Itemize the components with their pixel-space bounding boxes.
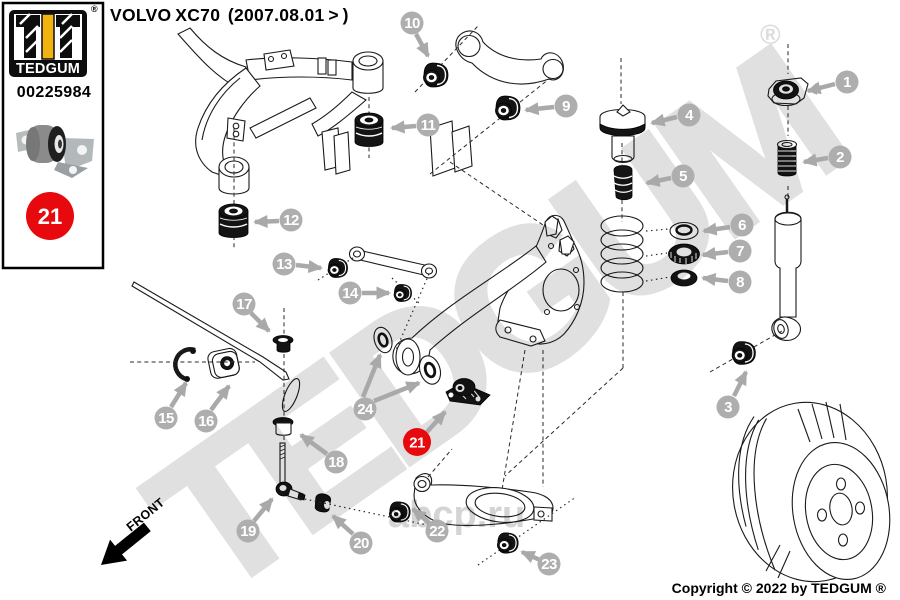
svg-text:8: 8 — [736, 274, 744, 291]
svg-text:4: 4 — [685, 107, 694, 124]
svg-text:7: 7 — [736, 243, 744, 260]
svg-text:Copyright © 2022 by TEDGUM ®: Copyright © 2022 by TEDGUM ® — [672, 580, 887, 596]
svg-text:1: 1 — [843, 74, 851, 91]
svg-text:®: ® — [760, 19, 781, 50]
svg-text:®: ® — [91, 4, 98, 14]
svg-text:VOLVO XC70 (2007.08.01 > ): VOLVO XC70 (2007.08.01 > ) — [110, 5, 349, 25]
svg-text:11: 11 — [421, 117, 436, 134]
svg-text:20: 20 — [353, 535, 369, 552]
svg-text:19: 19 — [240, 523, 256, 540]
svg-text:17: 17 — [236, 296, 252, 313]
svg-text:24: 24 — [357, 401, 374, 418]
svg-text:22: 22 — [429, 523, 445, 540]
svg-text:15: 15 — [158, 410, 174, 427]
svg-text:16: 16 — [198, 413, 214, 430]
svg-text:23: 23 — [541, 556, 557, 573]
svg-text:13: 13 — [276, 256, 292, 273]
svg-text:2: 2 — [836, 149, 844, 166]
svg-text:18: 18 — [328, 454, 344, 471]
svg-text:TEDGUM: TEDGUM — [16, 61, 80, 77]
svg-text:3: 3 — [724, 399, 732, 416]
svg-text:12: 12 — [283, 212, 299, 229]
svg-text:9: 9 — [562, 98, 570, 115]
svg-text:14: 14 — [342, 285, 359, 302]
svg-text:00225984: 00225984 — [17, 84, 91, 101]
svg-text:21: 21 — [409, 435, 425, 452]
svg-text:6: 6 — [738, 217, 746, 234]
svg-text:21: 21 — [38, 204, 62, 229]
svg-text:10: 10 — [404, 15, 420, 32]
svg-text:abcp.ru: abcp.ru — [388, 494, 525, 536]
svg-text:5: 5 — [679, 168, 687, 185]
